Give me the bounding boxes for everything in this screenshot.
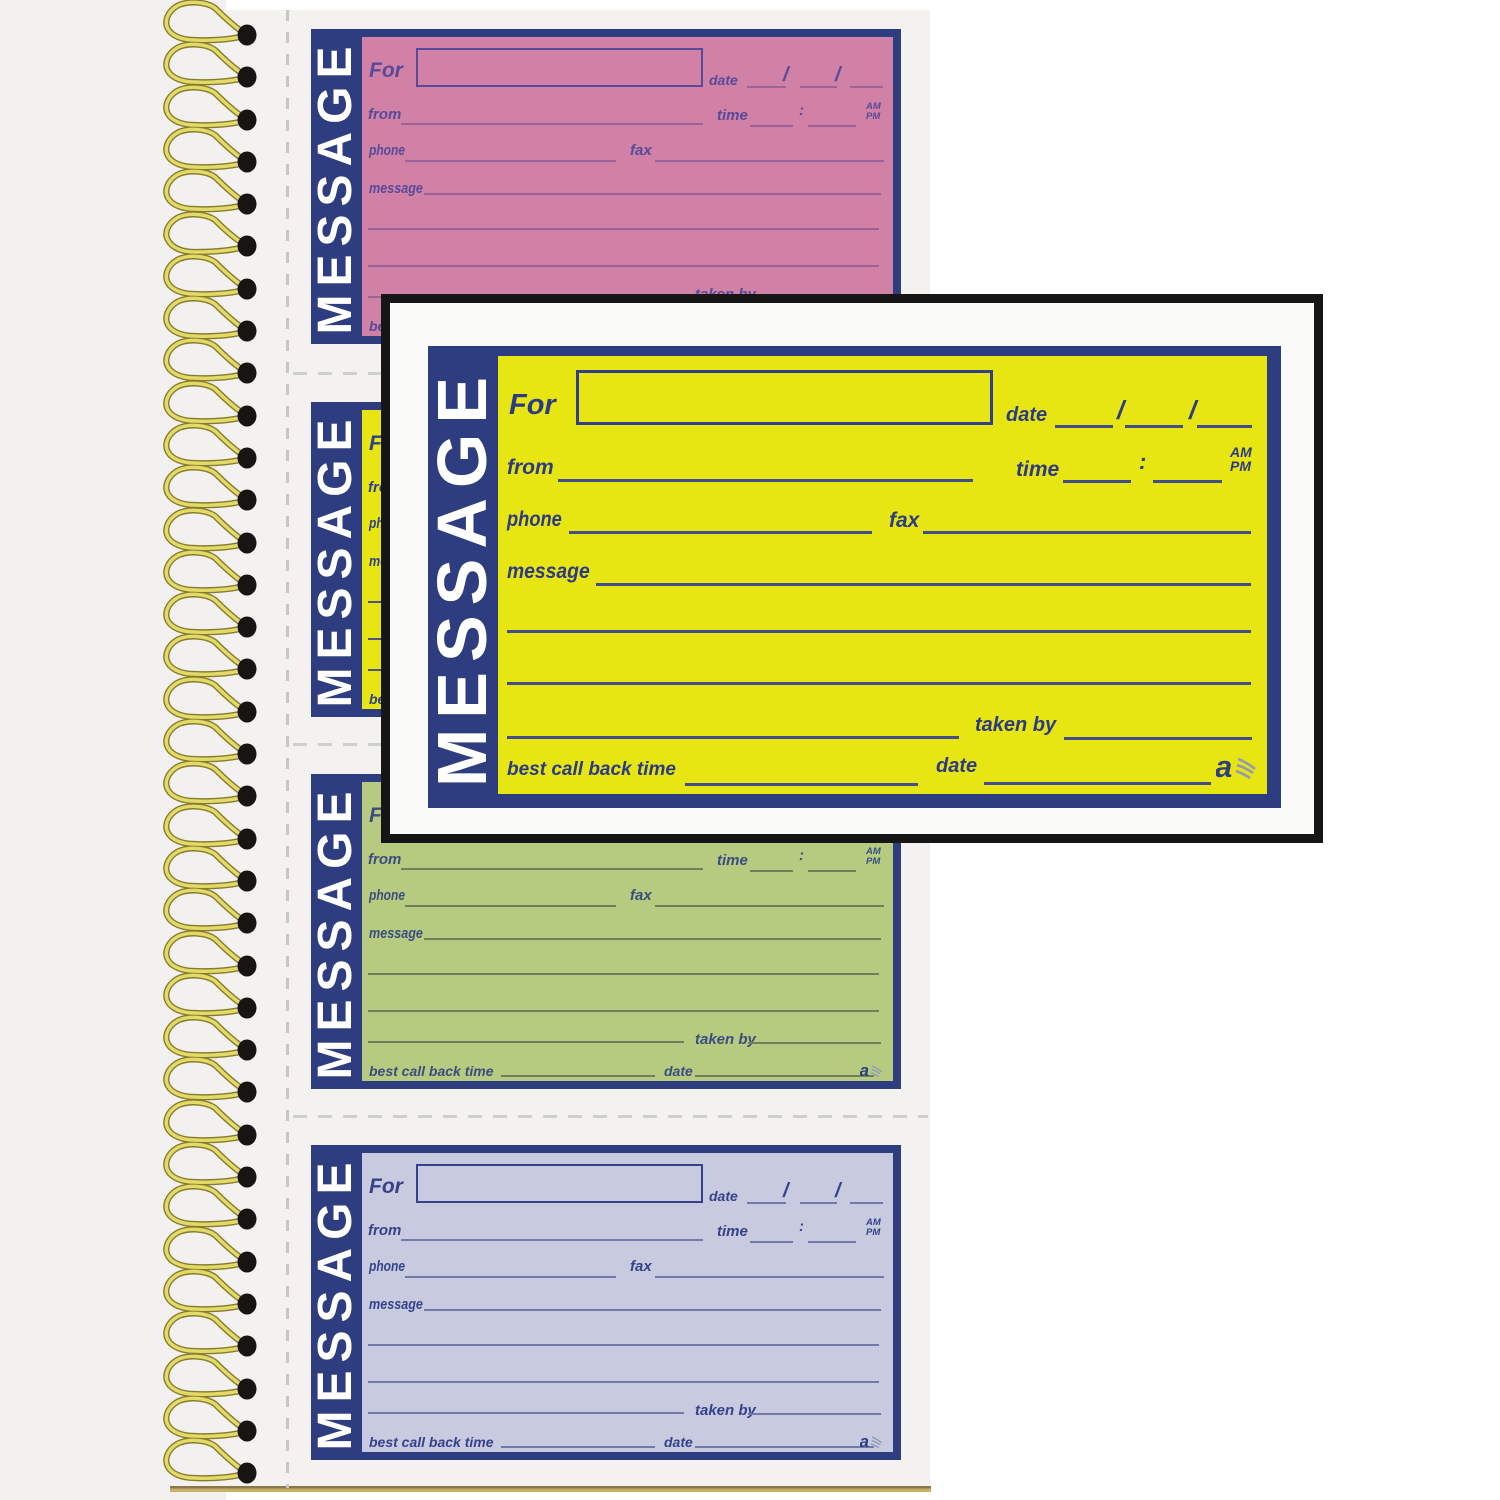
svg-text:a: a: [1216, 750, 1232, 782]
svg-text:a: a: [860, 1061, 869, 1079]
svg-text:a: a: [860, 1432, 869, 1450]
